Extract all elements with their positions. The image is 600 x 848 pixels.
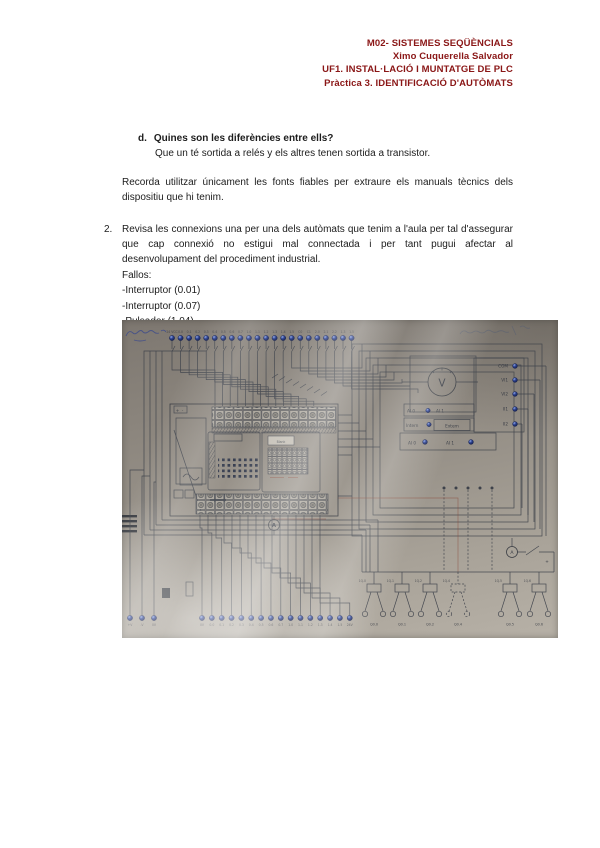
bottom-terminal (278, 615, 283, 620)
relay-contact (464, 611, 469, 616)
input-terminal (281, 335, 286, 340)
relay-contact (498, 611, 503, 616)
bottom-terminal-label: 1.3 (318, 623, 323, 627)
input-terminal-label: 24 VCC (166, 330, 177, 334)
input-terminal-label: 1.4 (281, 330, 286, 334)
relay-coil (451, 584, 465, 592)
bottom-terminal (308, 615, 313, 620)
relay-coil (503, 584, 517, 592)
handwritten-annotation (126, 330, 166, 341)
bottom-terminal-label: 1.0 (288, 623, 293, 627)
input-terminal-label: 0.6 (229, 330, 234, 334)
switch-plus-label: + (545, 559, 549, 564)
relay-coil-label: 1Q.2 (415, 579, 422, 583)
relay-output-bank: 1Q.0Q0.01Q.1Q0.11Q.2Q0.21Q.4Q0.41Q.5Q0.5… (359, 572, 554, 627)
bottom-terminal-label: 1.1 (298, 623, 303, 627)
relay-coil-label: 1Q.5 (495, 579, 502, 583)
bottom-terminal-label: 1.4 (328, 623, 333, 627)
input-terminal-label: 1.0 (246, 330, 251, 334)
relay-contact (545, 611, 550, 616)
input-terminal (229, 335, 234, 340)
input-terminal (289, 335, 294, 340)
relay-coil-label: 1Q.4 (443, 579, 450, 583)
bottom-terminal (327, 615, 332, 620)
input-terminal (298, 335, 303, 340)
plc-power-plus: + (176, 408, 180, 413)
fault-line-1: -Interruptor (0.01) (122, 283, 513, 298)
right-terminal (513, 407, 518, 412)
relay-coil-label: 1Q.6 (524, 579, 531, 583)
bottom-terminal-label: 0.5 (259, 623, 264, 627)
analog-row3-right: AI 1 (446, 441, 454, 446)
item-d-label: d. (138, 131, 147, 146)
plc-unit: + - Blank A (170, 404, 338, 531)
bottom-terminal (229, 615, 234, 620)
bottom-terminal-label: 0V (152, 623, 157, 627)
bottom-terminal-label: 0.4 (249, 623, 254, 627)
input-terminal-label: 0.0 (178, 330, 183, 334)
analog-terminal (427, 422, 431, 426)
voltmeter-block: V (410, 356, 476, 412)
relay-coil-label: 1Q.1 (387, 579, 394, 583)
input-terminal (169, 335, 174, 340)
bottom-terminal-label: 0V (200, 623, 205, 627)
bottom-terminal-label: 0.1 (219, 623, 224, 627)
bottom-terminal (249, 615, 254, 620)
ac-sine-icon (183, 474, 199, 480)
input-terminal-label: 1.5 (349, 330, 354, 334)
input-terminal (187, 335, 192, 340)
note-paragraph: Recorda utilitzar únicament les fonts fi… (122, 175, 513, 206)
junction-dot (467, 487, 470, 490)
bottom-terminal (209, 615, 214, 620)
analog-row2-right: Extern (445, 424, 459, 429)
input-terminal-label: 1.1 (255, 330, 260, 334)
ammeter-label: A (272, 523, 277, 529)
bottom-terminal-label: 0.6 (268, 623, 273, 627)
right-terminal (513, 378, 518, 383)
bottom-terminal (151, 615, 156, 620)
item-2: 2. Revisa les connexions una per una del… (104, 222, 513, 330)
bottom-terminal (219, 615, 224, 620)
bottom-terminal (239, 615, 244, 620)
relay-coil-label: 1Q.0 (359, 579, 366, 583)
header-line-4: Pràctica 3. IDENTIFICACIÓ D'AUTÒMATS (322, 77, 513, 90)
bottom-terminal (318, 615, 323, 620)
input-terminal-label: 2.0 (315, 330, 320, 334)
input-terminal-label: 2.2 (332, 330, 337, 334)
analog-terminal (469, 440, 474, 445)
relay-contact (380, 611, 385, 616)
fault-line-2: -Interruptor (0.07) (122, 299, 513, 314)
bottom-terminal-label: 0.0 (209, 623, 214, 627)
input-terminal-label: 1.2 (264, 330, 269, 334)
item-d: d. Quines son les diferències entre ells… (138, 131, 513, 162)
bottom-terminal-label: 0.2 (229, 623, 234, 627)
input-terminal-label: 1.3 (272, 330, 277, 334)
bottom-terminal (347, 615, 352, 620)
relay-contact (436, 611, 441, 616)
voltmeter-label: V (438, 378, 446, 390)
edge-connector-bars (122, 515, 137, 532)
plc-mini-terminal-grid (268, 448, 308, 474)
input-terminal (349, 335, 354, 340)
header-line-2: Ximo Cuquerella Salvador (322, 50, 513, 63)
fallos-title: Fallos: (122, 268, 513, 283)
bottom-terminal-label: 0.3 (239, 623, 244, 627)
item-d-question: Quines son les diferències entre ells? (154, 131, 334, 146)
right-terminal-label: COM (498, 364, 508, 369)
dashed-drop-wires (444, 490, 492, 570)
bottom-terminal-label: -V (140, 623, 144, 627)
analog-row1-left: AI 0 (407, 409, 415, 414)
right-terminal (513, 422, 518, 427)
item-2-label: 2. (104, 222, 114, 330)
handwritten-annotation (460, 326, 530, 335)
bottom-terminal (298, 615, 303, 620)
item-d-answer: Que un té sortida a relés y els altres t… (155, 146, 513, 161)
relay-contact (527, 611, 532, 616)
relay-contact-label: Q0.6 (535, 623, 543, 627)
header-line-1: M02- SISTEMES SEQÜÈNCIALS (322, 37, 513, 50)
input-terminal (263, 335, 268, 340)
plc-display-label: Blank (277, 440, 286, 444)
relay-contact (418, 611, 423, 616)
doc-body: d. Quines son les diferències entre ells… (122, 131, 513, 329)
relay-contact-label: Q0.0 (370, 623, 378, 627)
input-terminal-label: 0.4 (212, 330, 217, 334)
input-terminal (306, 335, 311, 340)
relay-coil (423, 584, 437, 592)
bottom-terminal (259, 615, 264, 620)
right-terminal-label: VI1 (501, 378, 508, 383)
document-page: M02- SISTEMES SEQÜÈNCIALS Ximo Cuquerell… (0, 0, 600, 848)
right-terminal-column: COMVI1VI2II1II2 (498, 364, 517, 427)
relay-contact-label: Q0.1 (398, 623, 406, 627)
analog-terminal (423, 440, 428, 445)
input-terminal-label: 0.7 (238, 330, 243, 334)
bottom-fuse (186, 582, 193, 596)
input-terminal-label: C1 (307, 330, 311, 334)
right-terminal (513, 364, 518, 369)
bottom-terminal (139, 615, 144, 620)
analog-terminal (426, 408, 430, 412)
analog-row3-left: AI 0 (408, 441, 416, 446)
input-terminal (332, 335, 337, 340)
relay-contact-label: Q0.5 (506, 623, 514, 627)
analog-row2-left: Intern (406, 423, 419, 428)
plc-input-terminal-strip (212, 407, 336, 427)
relay-coil (367, 584, 381, 592)
bottom-terminal-label: 1.5 (337, 623, 342, 627)
relay-ammeter-switch: A + (507, 547, 550, 565)
relay-coil (532, 584, 546, 592)
relay-contact (390, 611, 395, 616)
input-terminal-label: 0.3 (204, 330, 209, 334)
ammeter-label: A (510, 550, 514, 556)
analog-selector: AI 0 AI 1 Intern Extern AI 0 AI 1 (400, 404, 496, 450)
relay-contact-label: Q0.2 (426, 623, 434, 627)
input-terminal (340, 335, 345, 340)
relay-contact (446, 611, 451, 616)
input-terminal-label: 1.5 (289, 330, 294, 334)
bottom-terminal-label: 1.2 (308, 623, 313, 627)
relay-coil (395, 584, 409, 592)
plc-power-minus: - (182, 408, 184, 413)
input-terminal (238, 335, 243, 340)
input-terminal (272, 335, 277, 340)
right-terminal-label: II2 (503, 422, 508, 427)
relay-contact (408, 611, 413, 616)
item-2-text: Revisa les connexions una per una dels a… (122, 222, 513, 268)
bottom-terminal (288, 615, 293, 620)
junction-dot (443, 487, 446, 490)
bottom-terminal-label: +V (128, 623, 134, 627)
bottom-terminal-label: 0.7 (278, 623, 283, 627)
header-line-3: UF1. INSTAL·LACIÓ I MUNTATGE DE PLC (322, 63, 513, 76)
bottom-terminal (199, 615, 204, 620)
bottom-terminal (127, 615, 132, 620)
junction-dot (491, 487, 494, 490)
input-terminal-label: 0.1 (187, 330, 192, 334)
plc-led-grid (218, 456, 258, 479)
input-terminal (212, 335, 217, 340)
bottom-terminal (337, 615, 342, 620)
right-terminal (513, 392, 518, 397)
input-terminal (204, 335, 209, 340)
input-terminal-label: 1.3 (341, 330, 346, 334)
input-terminal (178, 335, 183, 340)
bottom-component (162, 588, 170, 598)
relay-contact (516, 611, 521, 616)
relay-contact-label: Q0.4 (454, 623, 462, 627)
relay-contact (362, 611, 367, 616)
schematic-photo: + - Blank A (122, 320, 558, 638)
input-terminal-label: 2.1 (323, 330, 328, 334)
input-terminal (195, 335, 200, 340)
doc-header: M02- SISTEMES SEQÜÈNCIALS Ximo Cuquerell… (322, 37, 513, 90)
bottom-terminal-label: 24V (347, 623, 354, 627)
left-routing-wires (144, 351, 554, 572)
input-terminal-label: C0 (298, 330, 302, 334)
junction-dot (455, 487, 458, 490)
input-terminal-label: 0.5 (221, 330, 226, 334)
analog-row1-right: AI 1 (436, 409, 444, 414)
input-terminal (246, 335, 251, 340)
input-terminal (315, 335, 320, 340)
bottom-terminal (268, 615, 273, 620)
input-terminal (255, 335, 260, 340)
right-terminal-label: VI2 (501, 392, 508, 397)
right-terminal-label: II1 (503, 407, 508, 412)
input-terminal-label: 0.2 (195, 330, 200, 334)
junction-dot (479, 487, 482, 490)
bottom-terminal-row: +V-V0V0V0.00.10.20.30.40.50.60.71.01.11.… (127, 470, 353, 627)
plc-output-terminal-strip (196, 494, 328, 514)
input-terminal (221, 335, 226, 340)
input-terminal (323, 335, 328, 340)
plc-wiring-diagram: + - Blank A (122, 320, 558, 638)
